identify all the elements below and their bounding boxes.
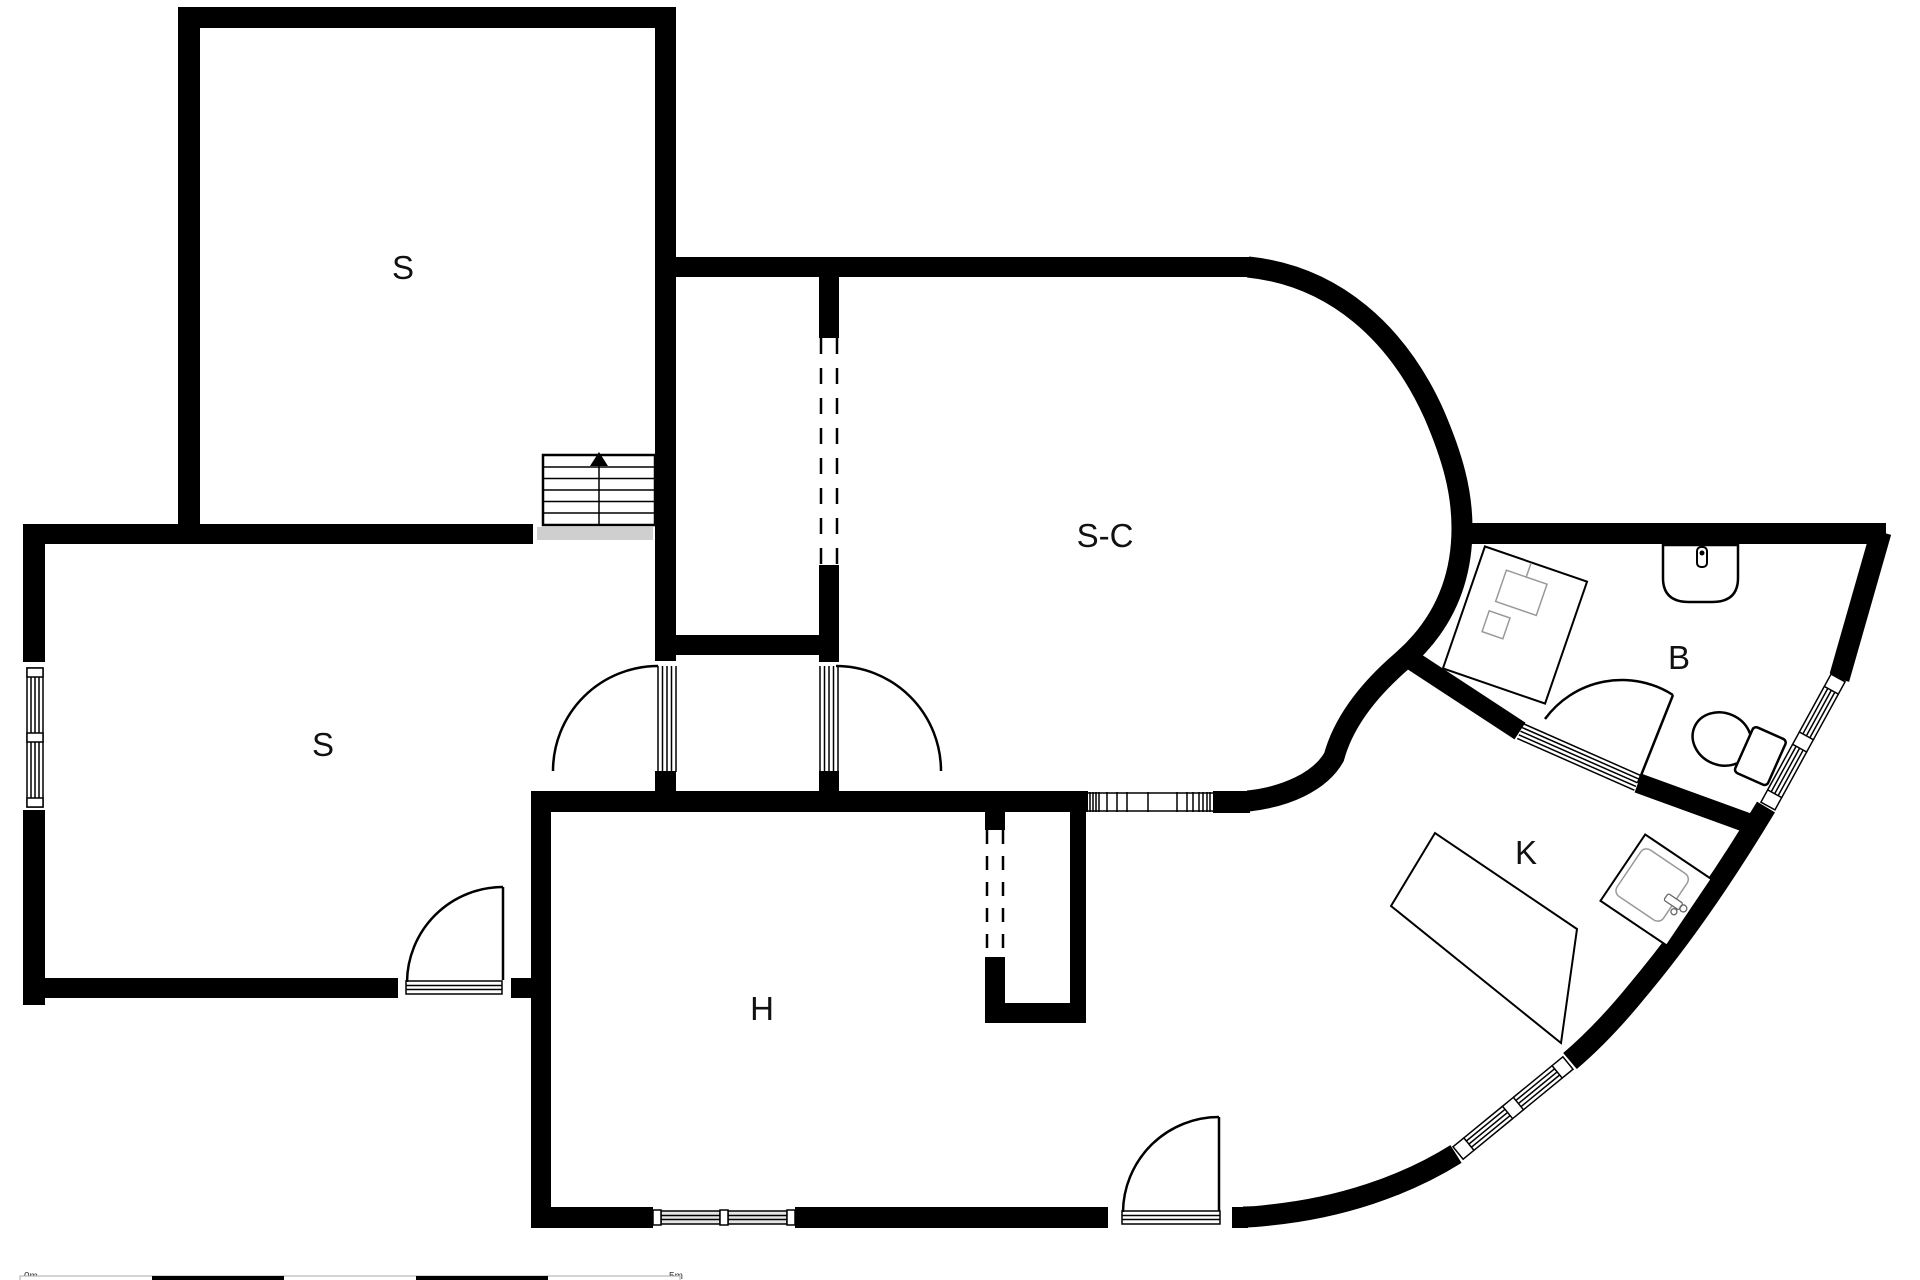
wall-corridor-south [676, 635, 819, 655]
wall-left-bedroom-west-lower [23, 810, 45, 1005]
wall-hall-west [531, 793, 551, 1228]
room-label-bathroom: B [1668, 639, 1690, 676]
plan-background [0, 0, 1920, 1280]
wall-corridor-west-column [655, 7, 676, 661]
floor-plan-canvas: S S S-C B K H 0m 5m [0, 0, 1920, 1280]
staircase [543, 452, 655, 525]
wall-passthrough-east-piece [1213, 791, 1250, 813]
room-label-bedroom-lower: S [312, 726, 334, 763]
window-left-bedroom [27, 668, 43, 807]
stair-landing [537, 527, 653, 540]
wall-left-bedroom-south-left [23, 978, 402, 998]
wall-mid-horizontal [23, 524, 533, 544]
wall-top-bedroom-west [178, 7, 200, 544]
room-label-hall: H [750, 990, 774, 1027]
wall-living-north [675, 257, 1250, 277]
dashed-partition-closet [985, 830, 1005, 957]
scale-bar-segments [20, 1276, 680, 1280]
wall-vestibule-stub-west [655, 771, 676, 812]
dashed-partition-corridor [819, 338, 839, 565]
wall-corridor-east-upper [819, 277, 839, 338]
wall-hall-north [531, 791, 1088, 812]
wall-top-bedroom-north [178, 7, 675, 28]
wall-closet-west-upper [985, 812, 1005, 830]
wall-corridor-east-lower [819, 565, 839, 662]
room-label-bedroom-upper: S [392, 249, 414, 286]
room-label-living-dining: S-C [1077, 517, 1134, 554]
bathroom-sink [1663, 545, 1738, 602]
wall-hall-south-left [531, 1207, 653, 1228]
wall-bathroom-north [1452, 523, 1886, 544]
wall-left-bedroom-west-upper [23, 524, 45, 667]
window-hall-south [653, 1210, 795, 1225]
wall-closet-south [985, 1003, 1086, 1023]
wall-hall-south-mid [795, 1207, 1122, 1228]
wall-closet-west-lower [985, 957, 1005, 1003]
room-label-kitchen: K [1515, 834, 1537, 871]
wall-closet-east [1070, 791, 1086, 1023]
wall-vestibule-stub-east [819, 771, 839, 812]
bathroom-sink-faucet-icon [1697, 547, 1707, 567]
threshold-bedroom-door [406, 981, 502, 994]
threshold-hall-door [1122, 1211, 1220, 1224]
